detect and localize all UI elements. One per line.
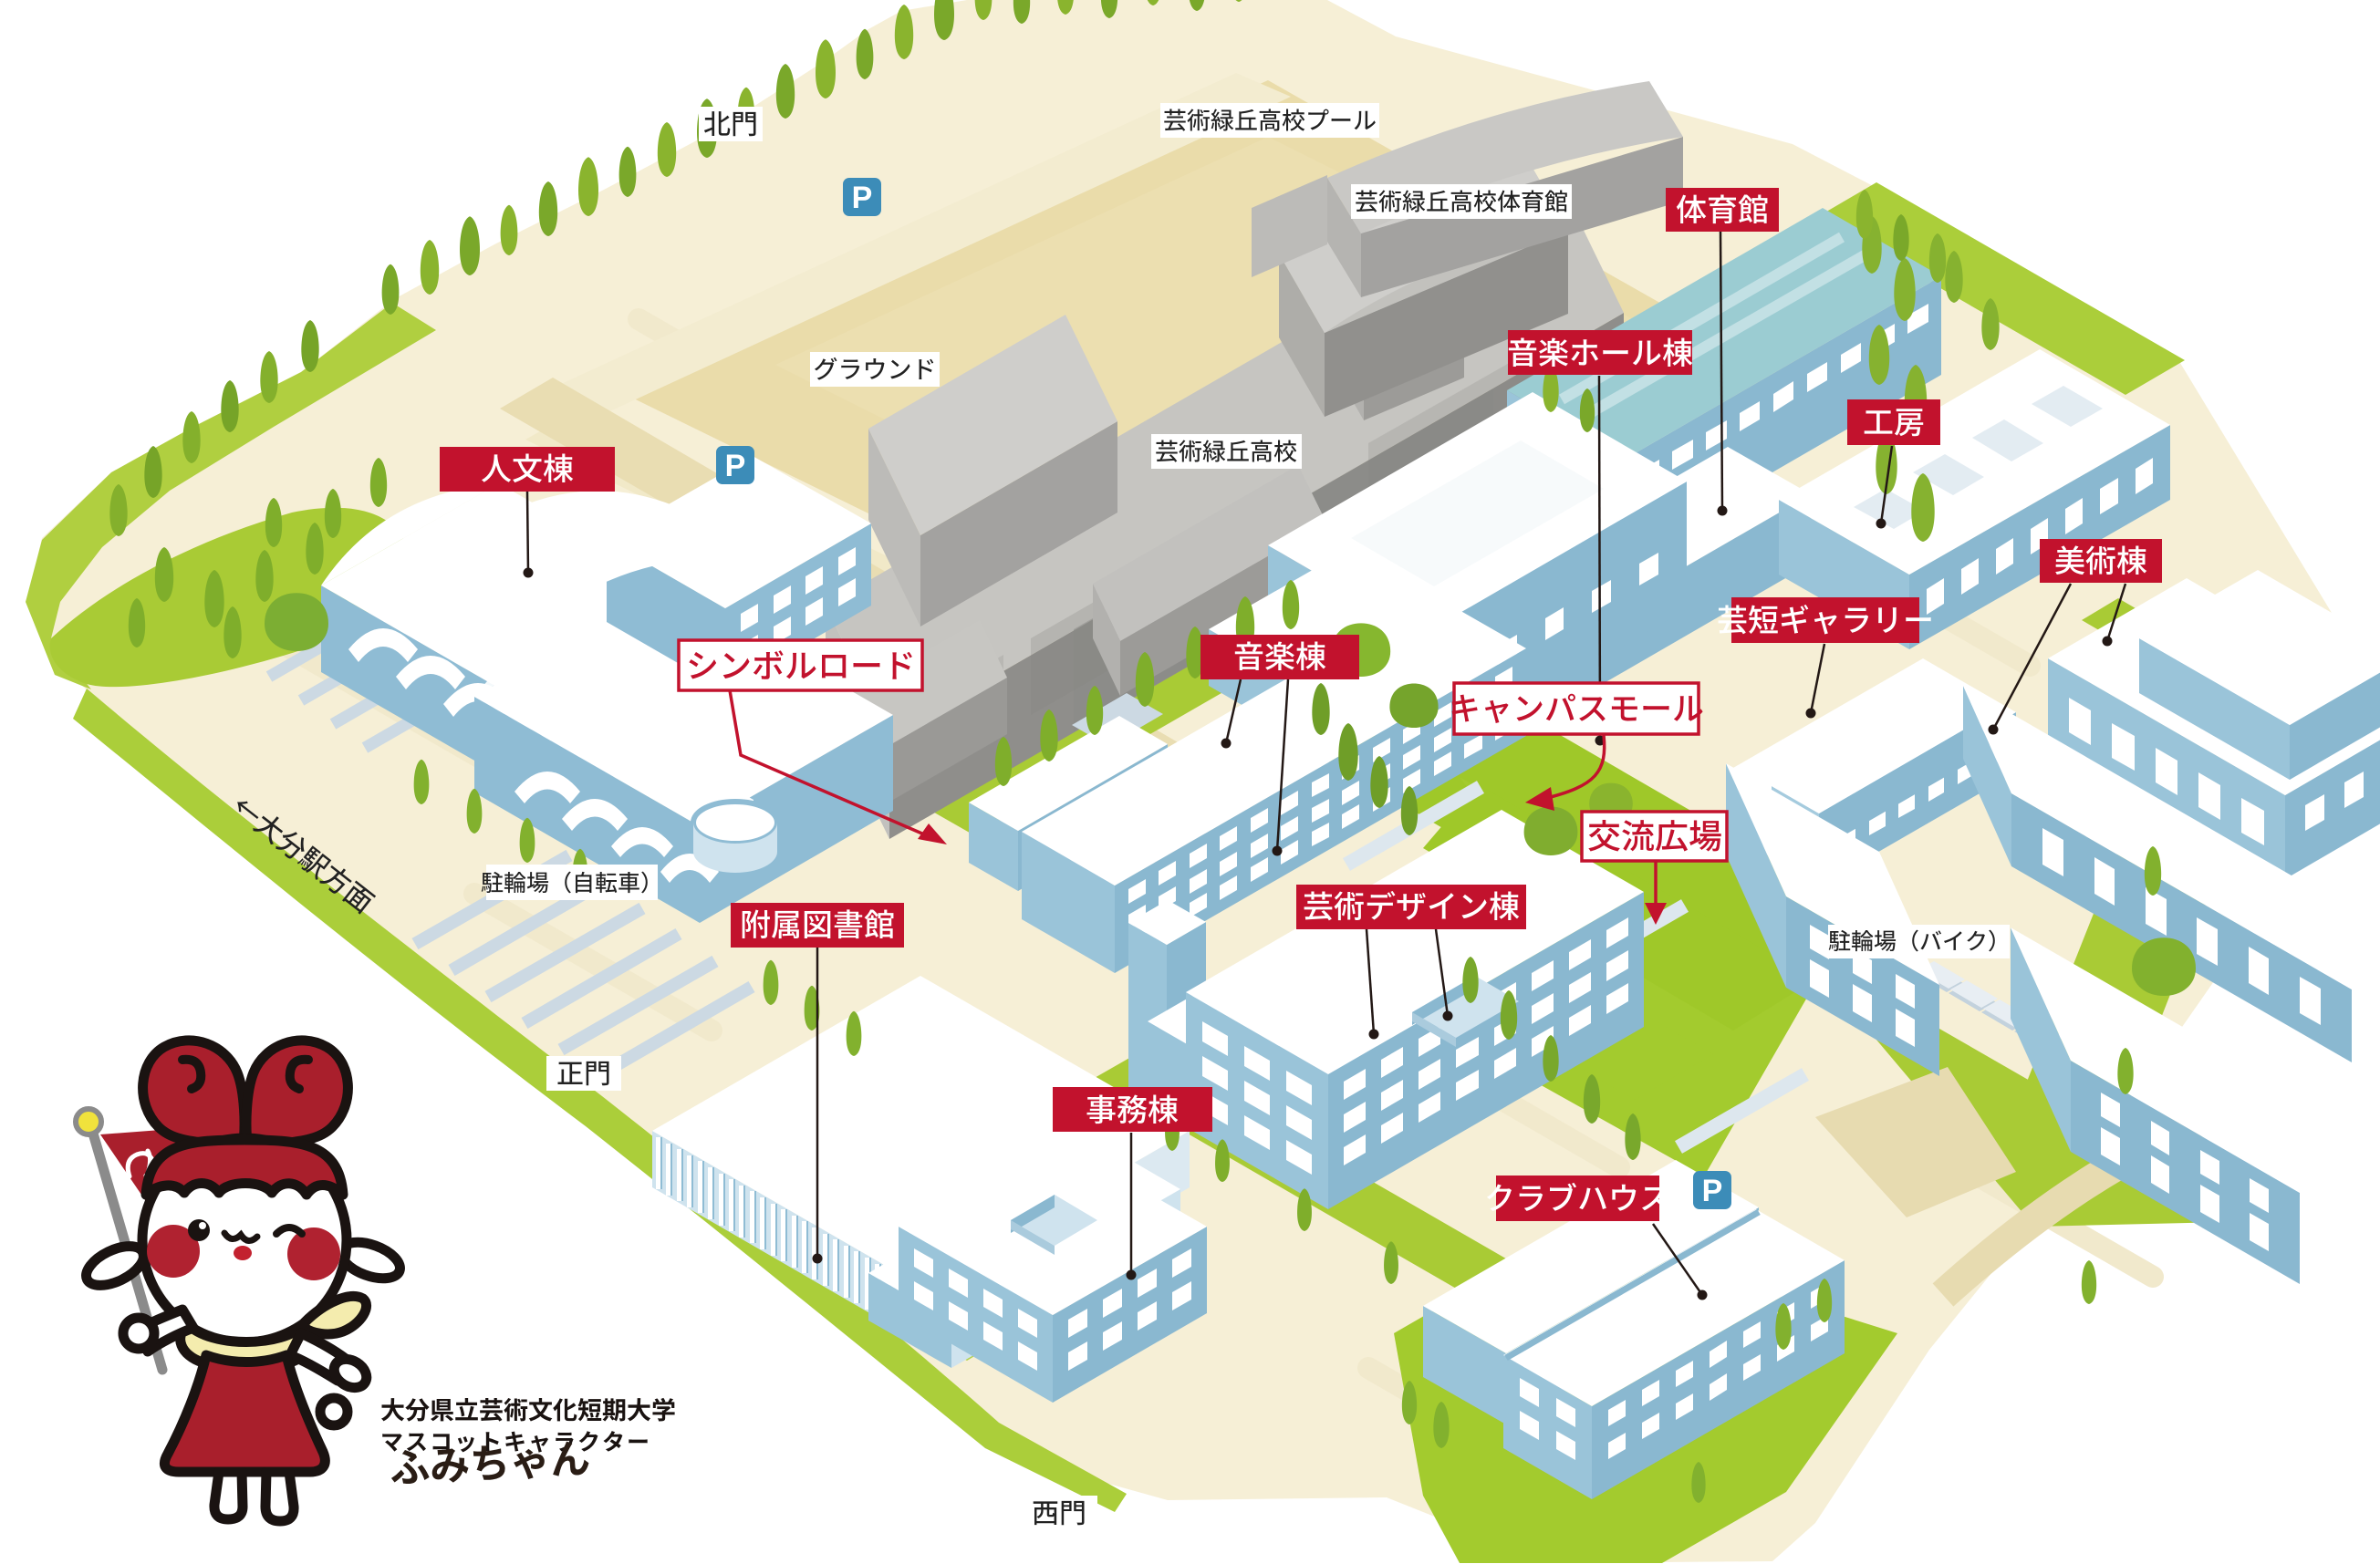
svg-text:P: P xyxy=(1702,1174,1723,1208)
svg-text:P: P xyxy=(725,449,746,483)
svg-text:P: P xyxy=(852,181,873,215)
